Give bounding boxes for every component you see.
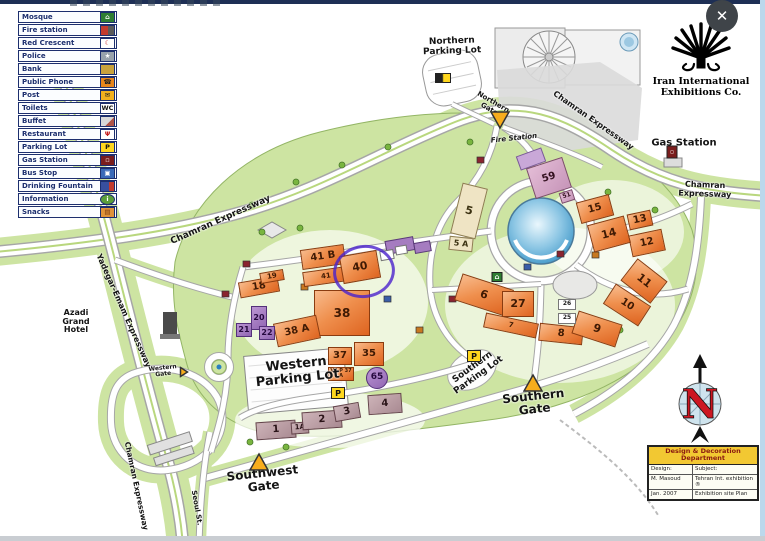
right-edge-strip bbox=[760, 0, 765, 541]
table-cell: Exhibition site Plan bbox=[693, 490, 757, 499]
map-label-fire-station: Fire Station bbox=[490, 133, 537, 145]
logo-text: Iran International Exhibitions Co. bbox=[648, 76, 754, 99]
exhibitions-logo: Iran International Exhibitions Co. bbox=[648, 20, 754, 99]
legend-item-fire-station: Fire station bbox=[18, 24, 117, 36]
legend-item-parking-lot: Parking LotP bbox=[18, 141, 117, 153]
building-26: 26 bbox=[558, 299, 576, 310]
southern-gate bbox=[523, 373, 543, 393]
legend-item-drinking-fountain: Drinking Fountain bbox=[18, 180, 117, 192]
legend-item-buffet: Buffet bbox=[18, 115, 117, 127]
parking-icon: P bbox=[467, 350, 481, 362]
legend-item-label: Drinking Fountain bbox=[22, 182, 93, 190]
buffet-icon bbox=[100, 116, 115, 127]
building-22: 22 bbox=[259, 326, 275, 340]
toilets-icon: WC bbox=[100, 103, 115, 114]
map-label-chamran-expressway: Chamran Expressway bbox=[123, 441, 150, 531]
legend-item-label: Restaurant bbox=[22, 130, 66, 138]
legend-item-gas-station: Gas Station▫ bbox=[18, 154, 117, 166]
building-5: 5 bbox=[450, 183, 488, 240]
building-21: 21 bbox=[236, 323, 252, 337]
drinking-fountain-icon bbox=[100, 181, 115, 192]
map-label-western: Western Gate bbox=[148, 364, 177, 380]
legend-item-label: Parking Lot bbox=[22, 143, 67, 151]
compass-n: N bbox=[682, 381, 719, 428]
building-27: 27 bbox=[502, 291, 534, 317]
legend: Mosque⌂Fire stationRed Crescent☾Police★B… bbox=[18, 11, 117, 218]
post-icon: ✉ bbox=[100, 90, 115, 101]
legend-item-red-crescent: Red Crescent☾ bbox=[18, 37, 117, 49]
legend-item-label: Public Phone bbox=[22, 78, 73, 86]
building-38-a: 38 A bbox=[273, 315, 321, 348]
map-label-chamran-expressway: Chamran Expressway bbox=[551, 90, 635, 152]
window-title-remnant bbox=[70, 0, 220, 6]
legend-item-label: Bus Stop bbox=[22, 169, 57, 177]
close-icon: ✕ bbox=[716, 7, 729, 25]
building-35: 35 bbox=[354, 342, 384, 366]
legend-item-bus-stop: Bus Stop▣ bbox=[18, 167, 117, 179]
western-gate bbox=[179, 367, 190, 378]
legend-item-label: Gas Station bbox=[22, 156, 68, 164]
police-icon: ★ bbox=[100, 51, 115, 62]
map-label-chamran-expressway: Chamran Expressway bbox=[170, 195, 273, 248]
gas-station-icon: ▫ bbox=[100, 155, 115, 166]
map-label-western: Western Parking Lot bbox=[254, 354, 340, 391]
legend-item-toilets: ToiletsWC bbox=[18, 102, 117, 114]
building-13: 13 bbox=[627, 210, 654, 231]
gas-pump-icon: ▫ bbox=[667, 146, 678, 159]
legend-item-label: Red Crescent bbox=[22, 39, 74, 47]
information-icon: i bbox=[100, 194, 115, 205]
public-phone-icon: ☎ bbox=[100, 77, 115, 88]
legend-item-police: Police★ bbox=[18, 50, 117, 62]
mosque-icon: ⌂ bbox=[100, 12, 115, 23]
table-grid: Design:Subject:M. MasoudTehran Int. exhi… bbox=[649, 465, 757, 499]
legend-item-label: Bank bbox=[22, 65, 42, 73]
building-65: 65 bbox=[366, 367, 388, 389]
legend-item-label: Mosque bbox=[22, 13, 53, 21]
table-cell: M. Masoud bbox=[649, 475, 693, 490]
legend-item-snacks: Snacks▤ bbox=[18, 206, 117, 218]
fire-station-icon bbox=[100, 25, 115, 36]
red-crescent-icon: ☾ bbox=[100, 38, 115, 49]
legend-item-bank: Bank bbox=[18, 63, 117, 75]
map-label-gas-station: Gas Station bbox=[651, 139, 716, 150]
compass-rose: N bbox=[672, 352, 728, 447]
table-cell: Subject: bbox=[693, 465, 757, 475]
restaurant-icon: Ψ bbox=[100, 129, 115, 140]
legend-item-label: Police bbox=[22, 52, 46, 60]
bank-icon bbox=[100, 64, 115, 75]
table-cell: Tehran Int. exhibition ® bbox=[693, 475, 757, 490]
parking-icon: P bbox=[331, 387, 345, 399]
table-cell: Jan. 2007 bbox=[649, 490, 693, 499]
legend-item-label: Information bbox=[22, 195, 68, 203]
mosque-icon: ⌂ bbox=[492, 272, 503, 282]
snacks-icon: ▤ bbox=[100, 207, 115, 218]
legend-item-post: Post✉ bbox=[18, 89, 117, 101]
table-title: Design & Decoration Department bbox=[649, 447, 757, 465]
parking-lot-icon: P bbox=[100, 142, 115, 153]
map-label-northern: Northern Parking Lot bbox=[423, 36, 482, 57]
building-25: 25 bbox=[558, 313, 576, 324]
close-button[interactable]: ✕ bbox=[706, 0, 738, 32]
map-label-seoul-st: Seoul St. bbox=[189, 490, 203, 526]
building-12: 12 bbox=[628, 229, 666, 258]
building-14: 14 bbox=[587, 216, 631, 253]
map-label-chamran-expressway: Chamran Expressway bbox=[675, 180, 736, 199]
legend-item-mosque: Mosque⌂ bbox=[18, 11, 117, 23]
legend-item-information: Informationi bbox=[18, 193, 117, 205]
southwest-gate bbox=[249, 452, 269, 472]
legend-item-label: Toilets bbox=[22, 104, 48, 112]
bottom-edge-strip bbox=[0, 536, 765, 541]
legend-item-label: Snacks bbox=[22, 208, 50, 216]
design-department-table: Design & Decoration Department Design:Su… bbox=[647, 445, 759, 501]
bus-stop-icon: ▣ bbox=[100, 168, 115, 179]
building-4: 4 bbox=[367, 393, 402, 415]
building-19: 19 bbox=[259, 268, 285, 283]
legend-item-public-phone: Public Phone☎ bbox=[18, 76, 117, 88]
building-5-a: 5 A bbox=[448, 236, 473, 252]
legend-item-label: Fire station bbox=[22, 26, 68, 34]
building-3: 3 bbox=[333, 402, 361, 422]
northern-gate bbox=[490, 110, 510, 130]
map-label-azadi: Azadi Grand Hotel bbox=[62, 309, 89, 335]
legend-item-label: Post bbox=[22, 91, 39, 99]
map-label-yadegar-emam-expressway: Yadegar-Emam Expressway bbox=[94, 253, 152, 369]
legend-item-restaurant: RestaurantΨ bbox=[18, 128, 117, 140]
legend-item-label: Buffet bbox=[22, 117, 46, 125]
map-lightbox: 41 B41403838 A3735V.I.P 37 A651819202122… bbox=[0, 0, 765, 541]
car-icon bbox=[435, 73, 451, 83]
table-cell: Design: bbox=[649, 465, 693, 475]
